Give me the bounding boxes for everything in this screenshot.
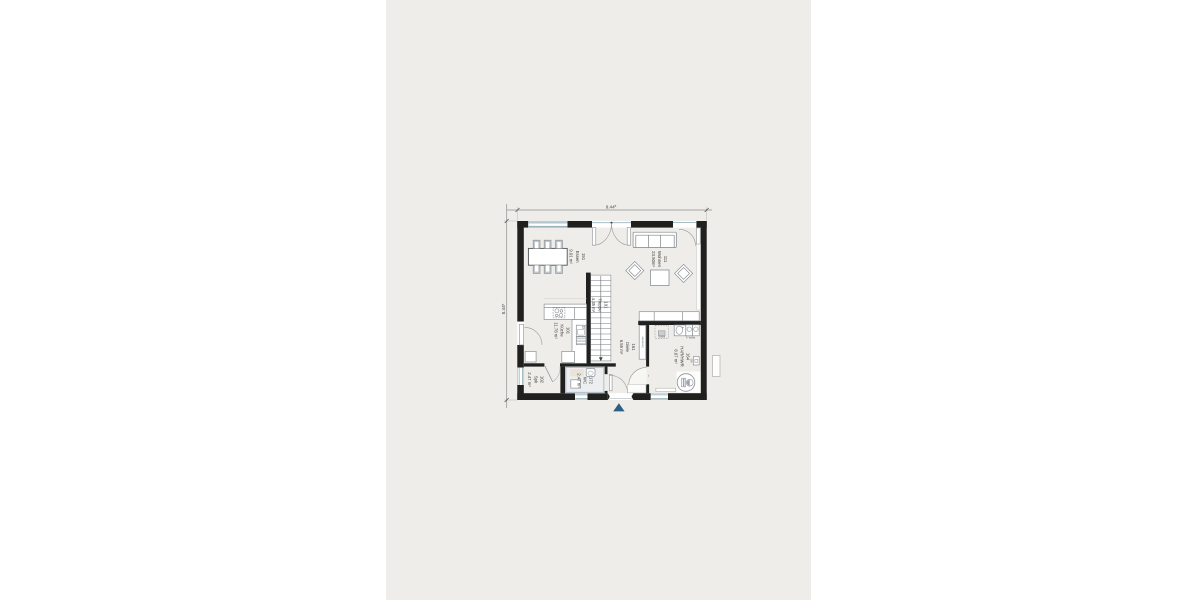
svg-text:Spk: Spk [533,376,538,384]
svg-text:Treppe: Treppe [597,298,602,312]
svg-text:9.445: 9.445 [606,204,617,209]
svg-text:151: 151 [581,253,586,261]
svg-text:101: 101 [566,327,571,335]
svg-text:23.50m²: 23.50m² [651,251,656,267]
svg-text:8.445: 8.445 [501,303,506,314]
svg-text:6.55 m²: 6.55 m² [619,340,624,355]
svg-text:2.47 m²: 2.47 m² [527,372,532,387]
svg-text:Wohnen: Wohnen [657,251,662,268]
svg-text:2.47 m²: 2.47 m² [576,373,581,388]
svg-text:4.35 m²: 4.35 m² [591,298,596,313]
svg-text:102: 102 [540,376,545,384]
svg-text:191: 191 [604,301,609,309]
svg-text:Diele: Diele [625,342,630,352]
svg-text:172: 172 [589,377,594,385]
svg-text:WC: WC [583,377,588,384]
svg-text:9.01 m²: 9.01 m² [569,249,574,264]
svg-text:161: 161 [631,343,636,351]
svg-text:8.67 m²: 8.67 m² [673,349,678,364]
svg-text:WS: WS [692,358,694,362]
svg-text:Küche: Küche [560,324,565,337]
svg-text:Tr WaMa: Tr WaMa [686,337,696,340]
svg-text:Essen: Essen [575,251,580,264]
svg-text:11.78 m²: 11.78 m² [553,322,558,339]
svg-text:76: 76 [648,374,650,377]
svg-text:111: 111 [663,256,668,263]
svg-text:WaMa: WaMa [659,336,666,338]
svg-text:HAR/HWR: HAR/HWR [680,346,685,367]
svg-text:Garderobe: Garderobe [642,336,645,348]
svg-text:164: 164 [686,353,691,361]
